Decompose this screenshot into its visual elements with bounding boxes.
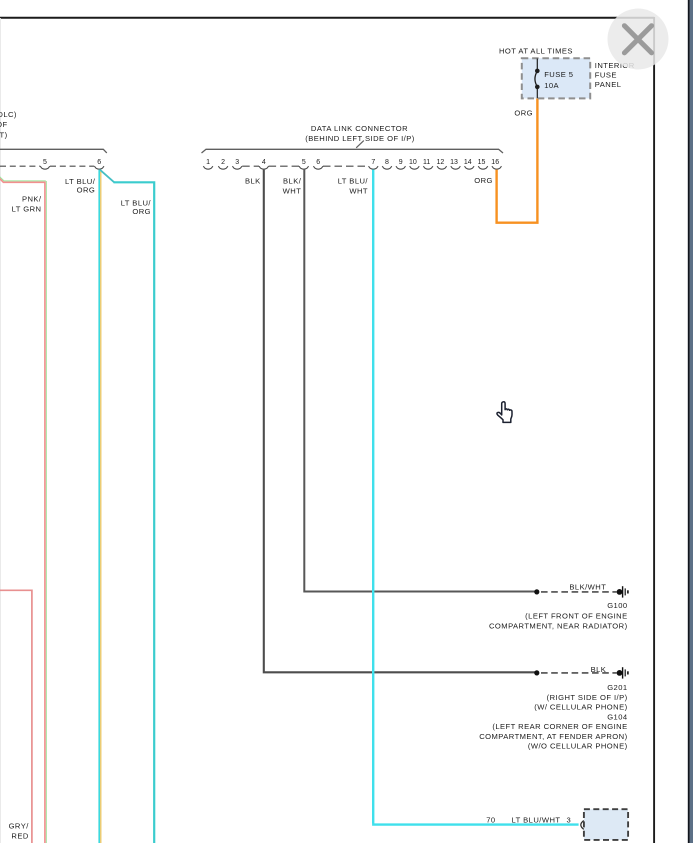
- svg-text:11: 11: [423, 159, 430, 166]
- svg-text:BLK: BLK: [591, 665, 607, 674]
- svg-text:10A: 10A: [544, 81, 559, 90]
- svg-text:DATA LINK CONNECTOR: DATA LINK CONNECTOR: [311, 124, 408, 133]
- svg-text:ORG: ORG: [132, 207, 151, 216]
- svg-text:(LEFT FRONT OF ENGINE: (LEFT FRONT OF ENGINE: [525, 611, 627, 620]
- svg-text:4: 4: [262, 159, 266, 166]
- svg-text:PNK/: PNK/: [22, 195, 42, 204]
- svg-text:12: 12: [436, 159, 444, 166]
- svg-text:LT GRN: LT GRN: [12, 205, 42, 214]
- svg-text:LT BLU/: LT BLU/: [338, 176, 369, 185]
- svg-text:9: 9: [399, 159, 403, 166]
- svg-text:HOT AT ALL TIMES: HOT AT ALL TIMES: [499, 47, 573, 56]
- svg-text:FUSE: FUSE: [595, 71, 617, 80]
- svg-text:WHT: WHT: [283, 186, 302, 195]
- svg-text:1: 1: [206, 159, 210, 166]
- svg-text:14: 14: [464, 159, 472, 166]
- svg-text:7: 7: [371, 159, 375, 166]
- svg-text:(W/O CELLULAR PHONE): (W/O CELLULAR PHONE): [528, 742, 628, 751]
- svg-text:G100: G100: [607, 601, 627, 610]
- svg-text:(W/ CELLULAR PHONE): (W/ CELLULAR PHONE): [534, 703, 627, 712]
- svg-text:(RIGHT SIDE OF I/P): (RIGHT SIDE OF I/P): [547, 693, 628, 702]
- svg-text:WHT: WHT: [349, 186, 368, 195]
- svg-text:13: 13: [450, 159, 458, 166]
- svg-text:T): T): [0, 131, 8, 140]
- svg-text:70: 70: [486, 815, 495, 824]
- svg-text:ORG: ORG: [514, 108, 533, 117]
- svg-text:2: 2: [221, 159, 225, 166]
- svg-text:BLK/: BLK/: [283, 177, 302, 186]
- svg-text:FUSE 5: FUSE 5: [544, 70, 573, 79]
- svg-text:15: 15: [478, 159, 486, 166]
- svg-text:BLK: BLK: [245, 177, 261, 186]
- svg-text:3: 3: [567, 815, 572, 824]
- svg-text:COMPARTMENT, NEAR RADIATOR): COMPARTMENT, NEAR RADIATOR): [489, 621, 628, 630]
- svg-text:16: 16: [491, 159, 499, 166]
- svg-text:5: 5: [302, 159, 306, 166]
- svg-text:LT BLU/WHT: LT BLU/WHT: [512, 815, 561, 824]
- svg-text:G201: G201: [607, 683, 627, 692]
- svg-text:ORG: ORG: [77, 186, 96, 195]
- svg-text:(LEFT REAR CORNER OF ENGINE: (LEFT REAR CORNER OF ENGINE: [492, 722, 627, 731]
- svg-text:BLK/WHT: BLK/WHT: [569, 583, 606, 592]
- svg-text:ORG: ORG: [474, 176, 493, 185]
- svg-text:(BEHIND LEFT SIDE OF I/P): (BEHIND LEFT SIDE OF I/P): [305, 134, 414, 143]
- svg-text:3: 3: [235, 159, 239, 166]
- svg-text:8: 8: [385, 159, 389, 166]
- svg-text:GRY/: GRY/: [9, 821, 30, 830]
- svg-text:OF: OF: [0, 120, 8, 129]
- svg-text:G104: G104: [607, 712, 627, 721]
- svg-text:10: 10: [409, 159, 417, 166]
- svg-text:6: 6: [97, 159, 101, 166]
- svg-text:RED: RED: [11, 831, 28, 840]
- svg-text:(DLC): (DLC): [0, 110, 17, 119]
- svg-text:5: 5: [43, 159, 47, 166]
- svg-text:PANEL: PANEL: [595, 80, 622, 89]
- svg-text:6: 6: [316, 159, 320, 166]
- svg-text:COMPARTMENT, AT FENDER APRON): COMPARTMENT, AT FENDER APRON): [479, 732, 627, 741]
